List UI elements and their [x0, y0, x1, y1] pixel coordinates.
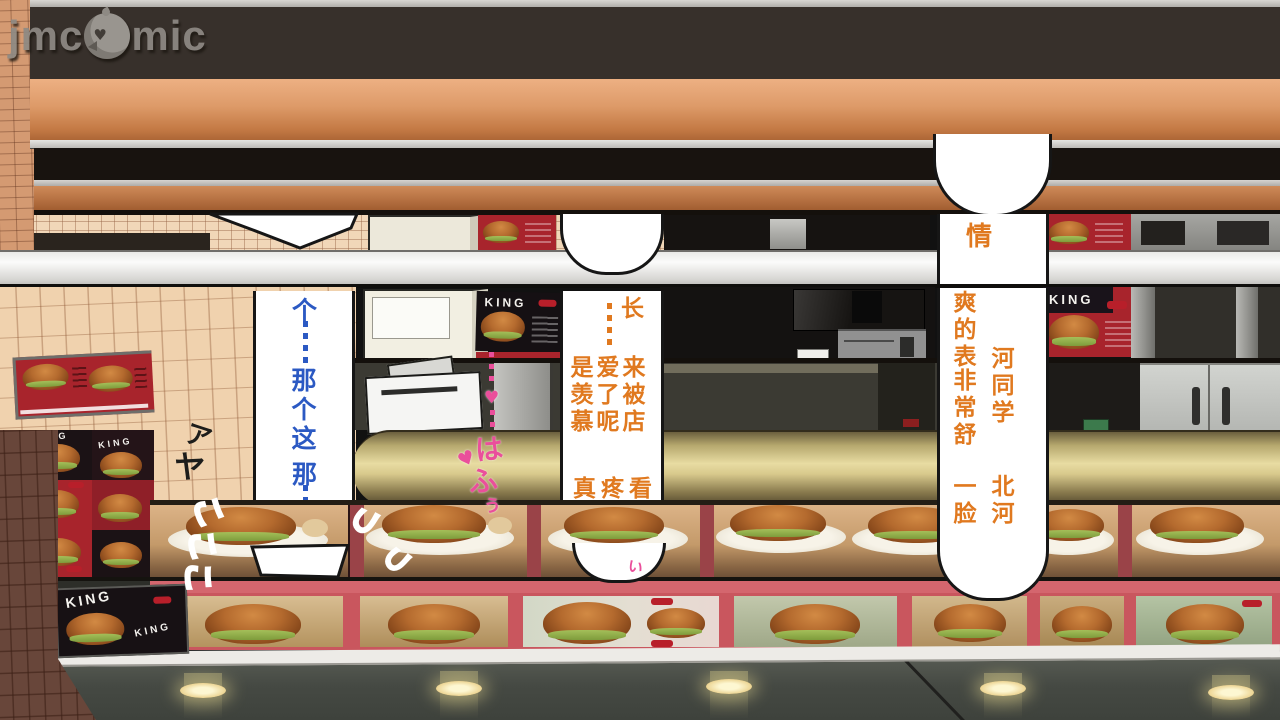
steel-shelf-right: [1131, 214, 1280, 252]
copper-band-upper: [30, 79, 1280, 140]
king-logo-text: KING: [1049, 292, 1094, 307]
bubble-text: 爱了呢: [593, 355, 616, 436]
burger-king-mini-logo: [153, 596, 171, 604]
watermark-text-left: jmc: [8, 12, 83, 60]
bubble-text: 那个这: [290, 367, 315, 454]
kiosk-box-large: [363, 289, 488, 365]
bubble-text: 情: [966, 216, 992, 253]
speech-bubble-blue: 个 那个这 那: [253, 291, 355, 505]
poster-burger: [205, 604, 301, 644]
menu-cell: [92, 530, 154, 580]
burger-photo: [22, 363, 69, 391]
poster-burger: [770, 604, 860, 644]
bubble-text: 非常舒: [950, 368, 973, 449]
burger-photo: [98, 494, 142, 522]
jmcomic-watermark: jmc ♥ mic: [8, 12, 207, 60]
burger-closeup: [1150, 507, 1244, 543]
burger-photo: [100, 542, 142, 568]
king-logo-text: KING: [484, 295, 526, 310]
bubble-text: 看: [629, 469, 652, 503]
strip-frame-bar: [527, 505, 541, 577]
king-logo-text: KING: [134, 621, 172, 639]
burger-king-mini-logo: [1107, 301, 1127, 309]
poster: [912, 596, 1027, 647]
copper-band-lower: [34, 186, 1280, 212]
ceiling-light: [1208, 685, 1254, 700]
potato-ball: [488, 517, 512, 534]
poster: [1040, 596, 1124, 647]
menu-board-black: KING: [475, 291, 563, 353]
burger-photo: [1049, 315, 1099, 349]
poster-frame-row: [150, 593, 1280, 650]
bubble-text: 来被店: [619, 355, 642, 436]
poster-burger: [647, 608, 705, 638]
door-split-line: [1208, 365, 1210, 432]
menu-text-dots: [525, 223, 551, 243]
menu-board-wall-upper: [12, 350, 154, 419]
panel-slot: [900, 337, 914, 357]
menu-cell: [92, 480, 154, 530]
burger-king-mini-logo: [68, 482, 84, 488]
speech-bubble-right-main: 爽的表 非常舒 一脸 河同学 北河: [937, 288, 1049, 538]
dotted-pause-line: [607, 303, 612, 347]
burger-closeup: [730, 505, 826, 541]
bubble-text: 是羡慕: [567, 355, 590, 436]
jmcomic-bird-icon: ♥: [84, 13, 130, 59]
receipt-printer: [365, 371, 484, 435]
top-thin-strip: [30, 0, 1280, 7]
sfx-white-outline: こ: [176, 560, 223, 594]
burger-king-mini-logo: [651, 598, 673, 605]
top-dark-bar: [30, 7, 1280, 79]
bubble-text: 河同学: [988, 346, 1011, 427]
comic-page: KING KING: [0, 0, 1280, 720]
burger-photo: [480, 311, 525, 342]
burger-photo: [100, 452, 142, 478]
poster-burger: [388, 604, 480, 644]
gray-pillar: [494, 363, 553, 430]
printer-slot: [381, 386, 457, 395]
panel-diagonal-line: [898, 653, 966, 720]
poster: [523, 596, 719, 647]
menu-card-red-2: [1043, 214, 1131, 252]
coffee-machine-module: [852, 291, 882, 323]
poster-burger: [934, 604, 1006, 642]
speech-bubble-blue-bottom: [248, 544, 352, 580]
menu-shine: [20, 404, 148, 415]
panel-line: [844, 340, 894, 342]
burger-king-mini-logo: [1242, 600, 1262, 607]
ceiling-light: [980, 681, 1026, 696]
silver-box: [770, 219, 806, 249]
bubble-text: 爽的表: [950, 290, 973, 371]
heart-icon: ♥: [484, 388, 499, 408]
bubble-text: 真: [573, 469, 596, 503]
menu-board-red-right: KING: [1043, 287, 1135, 357]
door-handle-left: [1192, 387, 1200, 425]
burger-photo: [483, 221, 519, 243]
menu-cell: KING: [92, 430, 154, 480]
red-indicator: [903, 419, 919, 427]
speech-bubble-tail-left: [205, 211, 363, 253]
bubble-text: 疼: [601, 469, 624, 503]
sfx-handwritten: ヤ: [171, 440, 208, 489]
door-handle-right: [1222, 387, 1230, 425]
menu-board-bottom-left: KING KING: [55, 584, 189, 659]
poster-burger: [1052, 606, 1112, 642]
watermark-text-right: mic: [131, 12, 206, 60]
bubble-text: 长: [621, 289, 644, 323]
ceiling-light: [180, 683, 226, 698]
burger-photo: [1049, 221, 1089, 244]
poster: [360, 596, 508, 647]
burger-closeup: [564, 507, 664, 543]
speech-bubble-right-mid: 情: [937, 214, 1049, 284]
king-logo-text: KING: [64, 587, 113, 611]
kiosk-screen: [372, 297, 450, 339]
potato-ball: [302, 519, 328, 537]
poster-burger: [543, 602, 631, 644]
menu-text-dots: [134, 366, 147, 389]
poster: [734, 596, 897, 647]
burger-king-mini-logo: [538, 300, 556, 307]
ceiling-light: [436, 681, 482, 696]
burger-photo: [66, 612, 125, 646]
ceiling-panel: [0, 659, 1280, 720]
menu-text-dots: [1095, 223, 1123, 243]
burger-king-mini-logo: [651, 640, 673, 647]
light-beam: [984, 673, 1022, 719]
bird-beak: [88, 41, 97, 51]
ceiling-light: [706, 679, 752, 694]
strip-frame-bar: [1118, 505, 1132, 577]
burger-photo: [88, 364, 133, 392]
speech-bubble-middle: 长 来被店 爱了呢 是羡慕 真 疼 看: [560, 291, 664, 505]
pink-dot-trail: [489, 352, 494, 386]
menu-text-dots: [72, 365, 87, 388]
steel-pillar-1: [1131, 287, 1155, 360]
sfx-pink: ぅ: [482, 488, 502, 517]
burger-king-mini-logo: [66, 566, 82, 572]
menu-text-dots: [1105, 319, 1131, 347]
poster: [1136, 596, 1272, 647]
poster: [165, 596, 343, 647]
dotted-pause-line: [303, 321, 308, 363]
shelf-inset: [1217, 221, 1269, 245]
bubble-text: 一脸: [950, 474, 973, 528]
strip-frame-bar: [700, 505, 714, 577]
menu-card-red-1: [478, 215, 556, 252]
shelf-inset: [1141, 221, 1185, 245]
king-logo-text: KING: [97, 436, 133, 451]
bubble-text: 北河: [988, 474, 1011, 528]
black-vent-slot: [34, 148, 1280, 180]
menu-text-dots: [531, 316, 558, 343]
poster-burger: [1166, 604, 1244, 644]
steel-pillar-2: [1236, 287, 1258, 360]
stainless-doors: [1140, 363, 1280, 432]
